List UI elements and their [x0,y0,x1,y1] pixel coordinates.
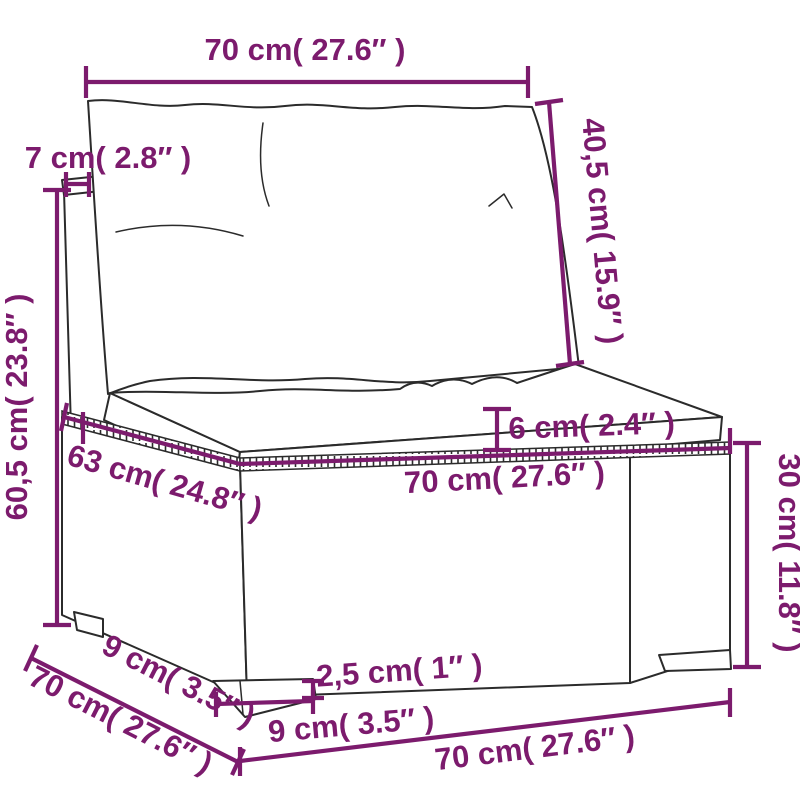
dimension-total-height: 60,5 cm( 23.8″ ) [0,190,71,625]
dimension-back-width: 70 cm( 27.6″ ) [86,32,528,98]
dimension-label-back-cushion-height: 40,5 cm( 15.9″ ) [575,117,630,346]
dimension-tick [535,100,563,104]
dimension-label-post-top-width: 7 cm( 2.8″ ) [25,140,191,175]
dimension-line [216,701,313,704]
base-right-face [630,447,730,683]
dimension-label-back-width: 70 cm( 27.6″ ) [205,32,406,67]
dimension-base-height: 30 cm( 11.8″ ) [733,443,800,667]
diagram-canvas: 70 cm( 27.6″ ) 40,5 cm( 15.9″ ) 7 cm( 2.… [0,0,800,800]
dimension-label-total-height: 60,5 cm( 23.8″ ) [0,294,34,521]
dimension-diagram: 70 cm( 27.6″ ) 40,5 cm( 15.9″ ) 7 cm( 2.… [0,0,800,800]
dimension-label-seat-cushion-thickness: 6 cm( 2.4″ ) [508,405,676,446]
dimension-label-base-height: 30 cm( 11.8″ ) [772,453,800,652]
